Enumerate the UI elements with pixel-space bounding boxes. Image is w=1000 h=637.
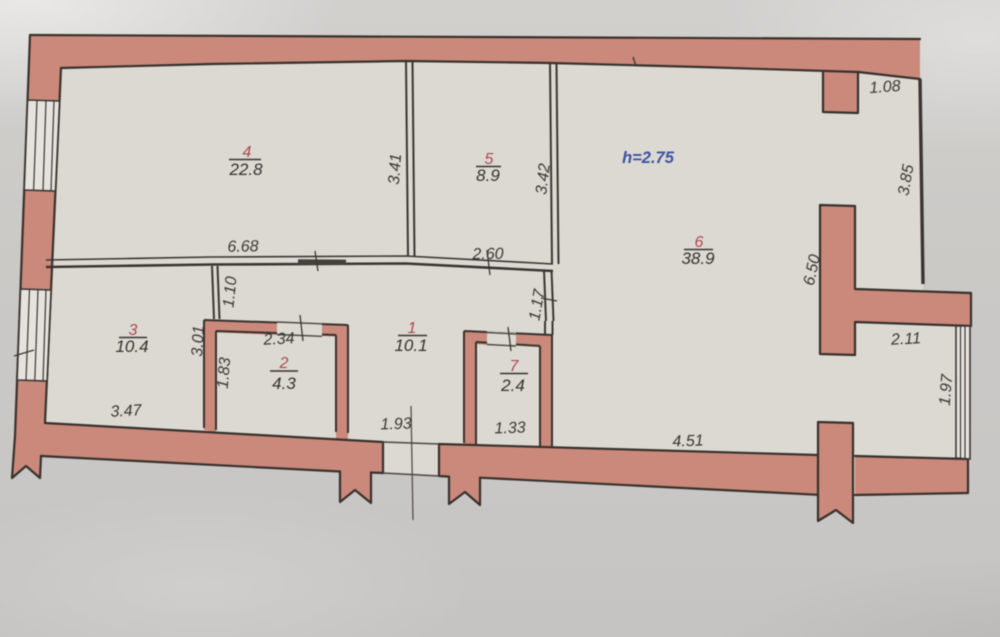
svg-text:2: 2 <box>279 355 289 372</box>
svg-text:38.9: 38.9 <box>681 249 715 268</box>
svg-text:3.47: 3.47 <box>110 402 143 421</box>
svg-text:2.4: 2.4 <box>500 376 525 395</box>
svg-text:7: 7 <box>510 358 520 375</box>
svg-text:4.51: 4.51 <box>672 432 704 450</box>
svg-text:4: 4 <box>243 144 252 161</box>
svg-text:1.08: 1.08 <box>869 78 901 97</box>
svg-text:1.97: 1.97 <box>937 373 957 407</box>
svg-text:2.34: 2.34 <box>262 330 295 349</box>
svg-text:1.83: 1.83 <box>215 357 235 390</box>
svg-text:h=2.75: h=2.75 <box>622 149 675 167</box>
svg-text:3.41: 3.41 <box>386 153 405 185</box>
svg-text:1.10: 1.10 <box>220 276 240 309</box>
svg-text:4.3: 4.3 <box>272 374 296 393</box>
svg-text:8.9: 8.9 <box>476 166 500 185</box>
svg-text:2.60: 2.60 <box>471 246 504 264</box>
svg-text:3.01: 3.01 <box>189 325 208 357</box>
svg-text:1.33: 1.33 <box>494 419 526 437</box>
svg-text:1.93: 1.93 <box>380 415 412 433</box>
svg-text:1: 1 <box>408 320 417 337</box>
svg-text:10.1: 10.1 <box>394 336 427 355</box>
svg-text:22.8: 22.8 <box>228 160 263 179</box>
svg-text:6.68: 6.68 <box>227 238 259 256</box>
svg-text:2.11: 2.11 <box>890 330 922 349</box>
svg-text:10.4: 10.4 <box>115 337 148 356</box>
